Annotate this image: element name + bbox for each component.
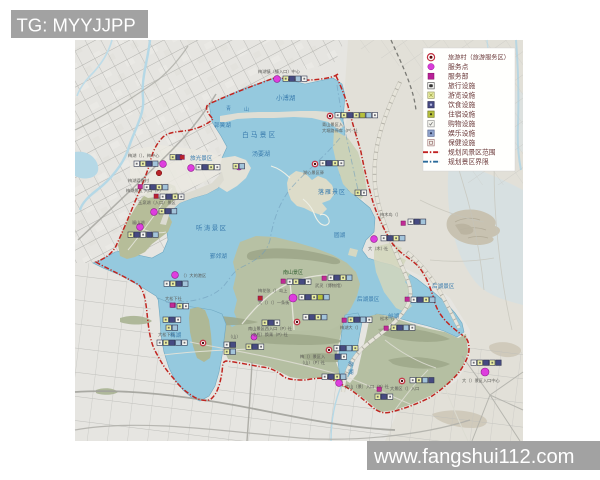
svg-text:梅湖渡假村: 梅湖渡假村 <box>128 177 150 184</box>
svg-text:（）大的港区: （）大的港区 <box>181 272 206 279</box>
svg-text:梅（）景区入: 梅（）景区入 <box>300 353 326 360</box>
svg-text:福山湖: 福山湖 <box>132 219 145 226</box>
svg-text:购物设施: 购物设施 <box>448 119 475 128</box>
svg-text:梅湖: 梅湖 <box>170 331 182 339</box>
svg-text:大（）（）一条街: 大（）（）一条街 <box>258 299 289 306</box>
svg-text:大（）景区入口中心: 大（）景区入口中心 <box>462 377 501 384</box>
svg-text:玉泉湖（入口）景区: 玉泉湖（入口）景区 <box>138 199 176 206</box>
svg-text:湖: 湖 <box>348 368 354 376</box>
svg-text:饮食设施: 饮食设施 <box>448 100 475 109</box>
svg-text:后湖景区: 后湖景区 <box>432 282 455 290</box>
svg-text:鄞郊湖: 鄞郊湖 <box>210 252 227 260</box>
svg-text:圆湖: 圆湖 <box>334 231 346 239</box>
svg-text:大景区（）入口: 大景区（）入口 <box>390 385 419 392</box>
svg-text:郭簧湖: 郭簧湖 <box>214 121 231 129</box>
svg-text:旅游村（旅游服务区）: 旅游村（旅游服务区） <box>448 54 510 62</box>
svg-text:旅行设施: 旅行设施 <box>448 81 475 90</box>
svg-text:大堰路停车（P）·社: 大堰路停车（P）·社 <box>322 127 358 134</box>
svg-text:游览设施: 游览设施 <box>448 91 475 100</box>
svg-text:梅湖镇（镇入口）中心: 梅湖镇（镇入口）中心 <box>258 68 301 75</box>
svg-text:南山景区: 南山景区 <box>283 269 303 276</box>
svg-text:落雁景区: 落雁景区 <box>318 188 346 196</box>
svg-text:梅花张（）岛上: 梅花张（）岛上 <box>258 287 287 294</box>
svg-text:旅光景区: 旅光景区 <box>190 154 213 162</box>
svg-text:青: 青 <box>226 105 231 112</box>
svg-text:白马景区: 白马景区 <box>242 130 277 139</box>
svg-text:www.fangshui112.com: www.fangshui112.com <box>373 446 574 468</box>
svg-text:前湖: 前湖 <box>388 312 400 320</box>
svg-text:汤要湖: 汤要湖 <box>252 150 270 158</box>
svg-text:大（木）·社: 大（木）·社 <box>368 245 388 252</box>
svg-text:保健设施: 保健设施 <box>448 138 475 147</box>
svg-text:武灵（博物馆）: 武灵（博物馆） <box>315 282 344 289</box>
svg-text:梅湖大（）: 梅湖大（） <box>340 324 361 331</box>
svg-text:湖心景区驿: 湖心景区驿 <box>303 169 325 176</box>
svg-text:梅湖（），梅中心: 梅湖（），梅中心 <box>128 152 160 159</box>
svg-text:（山）: （山） <box>228 333 241 340</box>
svg-text:大松下社: 大松下社 <box>165 295 182 302</box>
svg-text:TG: MYYJJPP: TG: MYYJJPP <box>17 15 136 36</box>
svg-text:梅木岛（）: 梅木岛（） <box>380 211 401 218</box>
svg-text:服务点: 服务点 <box>448 62 469 71</box>
svg-text:（电瓶）换乘（P）·社: （电瓶）换乘（P）·社 <box>248 331 288 338</box>
svg-text:住宿设施: 住宿设施 <box>448 110 475 119</box>
svg-text:小溥湖: 小溥湖 <box>276 93 295 102</box>
svg-text:听涛景区: 听涛景区 <box>196 223 228 232</box>
svg-text:规划风景区范围: 规划风景区范围 <box>448 148 496 157</box>
svg-text:南山景区西入口（P）·社: 南山景区西入口（P）·社 <box>248 325 292 332</box>
svg-text:象: 象 <box>348 360 354 368</box>
svg-text:青山景区入: 青山景区入 <box>322 121 344 128</box>
svg-text:娱乐设施: 娱乐设施 <box>448 129 475 138</box>
svg-text:服务部: 服务部 <box>448 72 469 81</box>
svg-text:规划景区界限: 规划景区界限 <box>448 157 489 166</box>
svg-text:梅湖景区 入口（P）: 梅湖景区 入口（P） <box>126 187 163 194</box>
svg-text:（山）（P）·社: （山）（P）·社 <box>300 359 325 366</box>
svg-text:后湖景区: 后湖景区 <box>357 295 380 303</box>
svg-text:山: 山 <box>244 106 249 113</box>
svg-text:大山（景）入口（P）·社: 大山（景）入口（P）·社 <box>345 383 389 390</box>
